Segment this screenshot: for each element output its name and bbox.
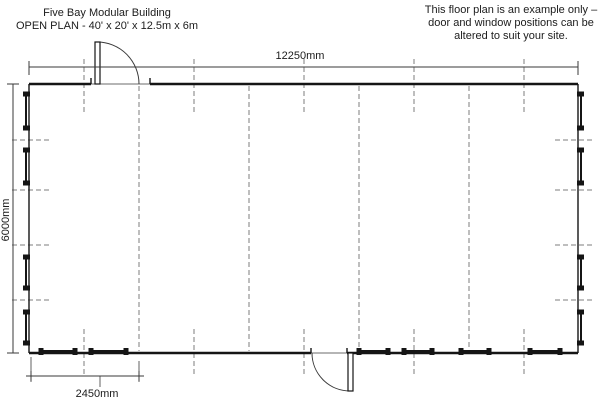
bottom-wall-window-end-block [357,348,362,355]
right-wall-window-end-block [577,341,584,346]
bottom-wall-window-end-block [386,348,391,355]
bottom-wall-window-end-block [558,348,563,355]
left-wall-window-end-block [23,181,30,186]
right-wall-window-end-block [577,310,584,315]
overall-width-dimension-label: 12250mm [250,50,350,63]
bottom-door-swing-arc [312,353,350,391]
bottom-wall-window-end-block [124,348,129,355]
bottom-wall-window-end-block [89,348,94,355]
bottom-wall-window-end-block [402,348,407,355]
left-wall-window-end-block [23,148,30,153]
right-wall-window-end-block [577,255,584,260]
bottom-door-leaf [348,353,353,391]
left-wall-window-end-block [23,92,30,97]
bay-width-dimension-label: 2450mm [57,388,137,401]
bottom-wall-window-end-block [487,348,492,355]
left-wall-window-end-block [23,255,30,260]
top-door-swing-arc [97,42,139,84]
right-wall-window-end-block [577,126,584,131]
overall-depth-dimension-label: 6000mm [0,190,14,250]
top-door-leaf [95,42,100,84]
left-wall-window-end-block [23,286,30,291]
right-wall-window-end-block [577,148,584,153]
bottom-wall-window-end-block [528,348,533,355]
bottom-wall-window-end-block [430,348,435,355]
right-wall-window-end-block [577,181,584,186]
left-wall-window-end-block [23,310,30,315]
bottom-wall-window-end-block [39,348,44,355]
bottom-wall-window-end-block [73,348,78,355]
left-wall-window-end-block [23,126,30,131]
bottom-wall-window-end-block [459,348,464,355]
floor-plan-page: Five Bay Modular Building OPEN PLAN - 40… [0,0,600,407]
right-wall-window-end-block [577,92,584,97]
right-wall-window-end-block [577,286,584,291]
left-wall-window-end-block [23,341,30,346]
